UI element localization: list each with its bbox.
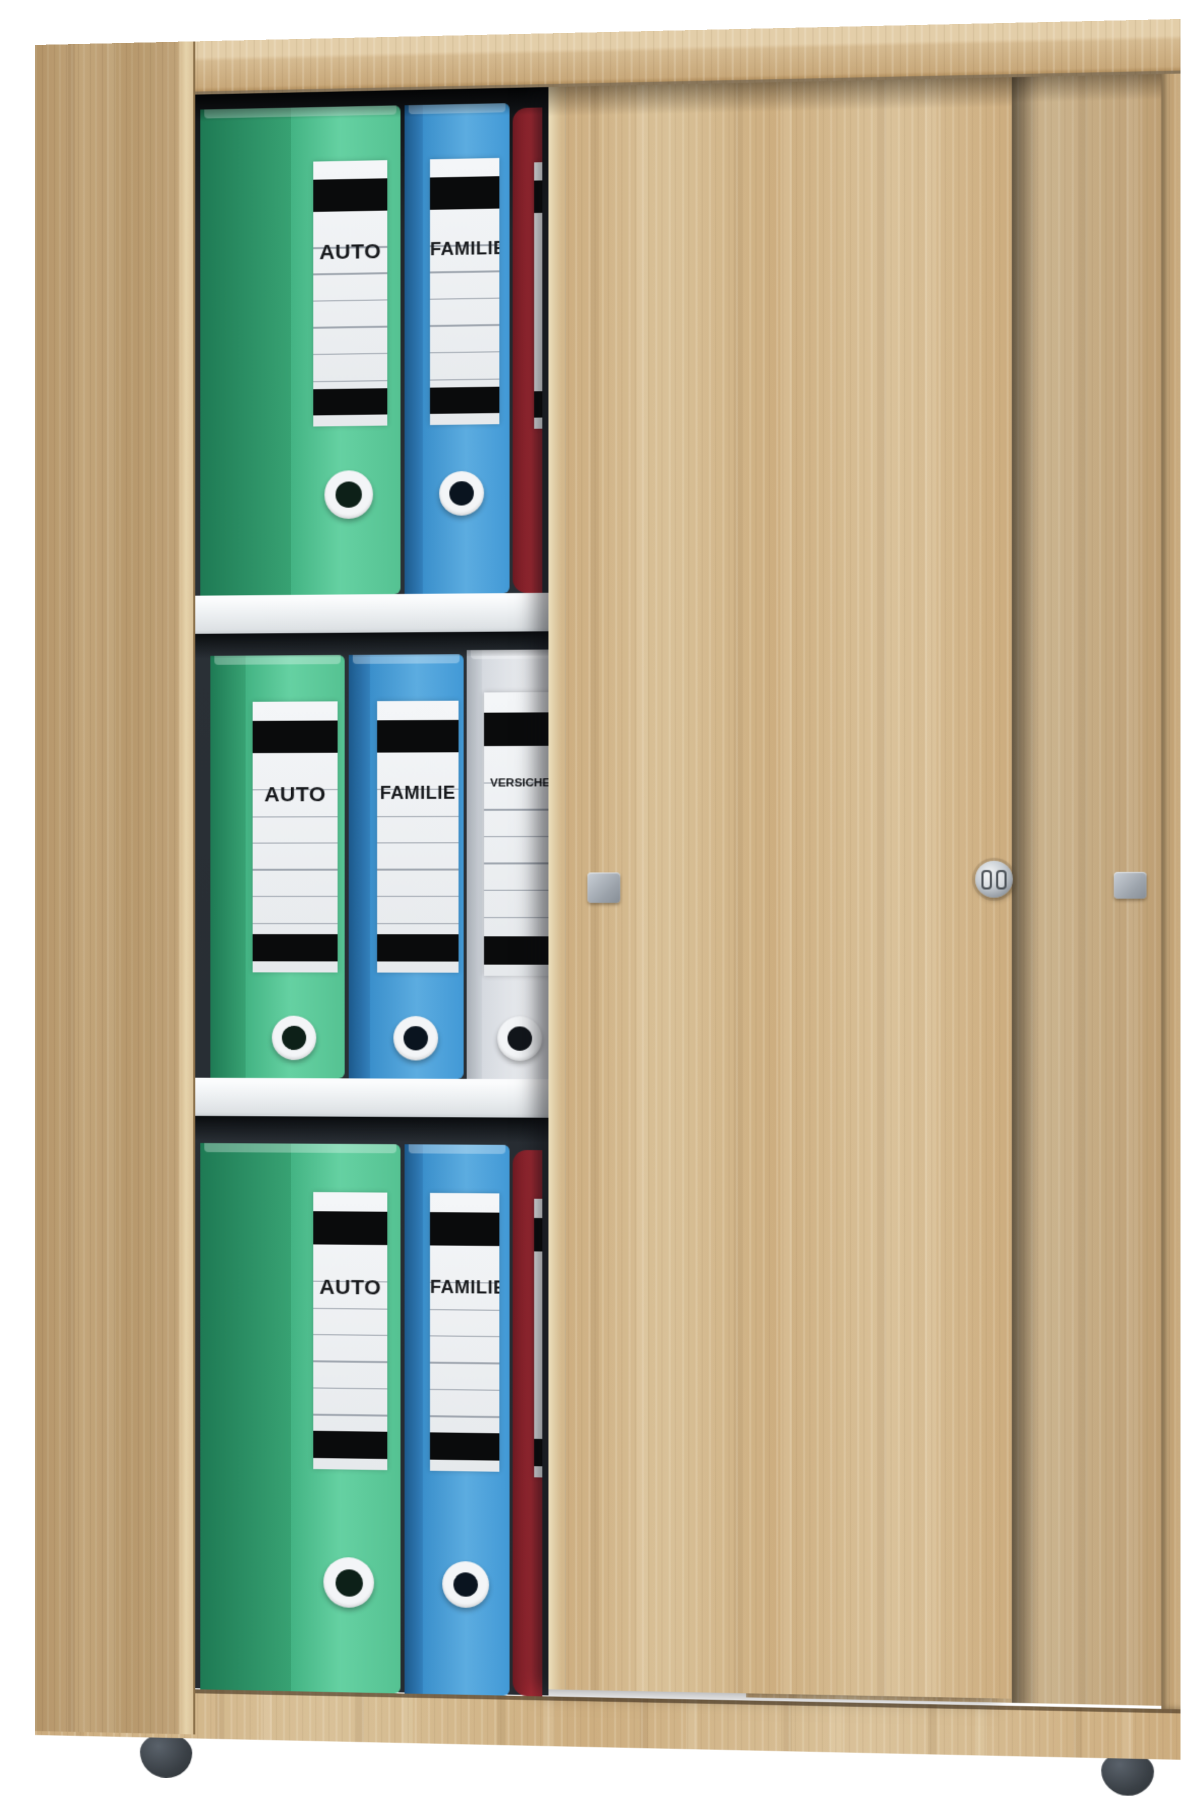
binder-label-text: AUTO bbox=[253, 783, 338, 807]
binder-blue-familie-bottom: FAMILIE bbox=[405, 1144, 510, 1695]
binder-green-auto-bottom: AUTO bbox=[200, 1143, 400, 1693]
binder-spine-shade bbox=[200, 108, 291, 596]
cabinet: AUTO FAMILIE AUTO bbox=[35, 19, 1180, 1801]
label-black-bar bbox=[430, 1432, 499, 1461]
binder-label bbox=[534, 162, 542, 429]
binder-label-text: FAMILIE bbox=[430, 1276, 499, 1298]
binder-grip-hole bbox=[442, 1561, 489, 1608]
binder-grip-hole bbox=[323, 1557, 374, 1608]
label-black-bar bbox=[377, 720, 458, 753]
front-door-handle bbox=[587, 872, 620, 902]
binder-spine-shade bbox=[210, 656, 245, 1078]
binder-green-auto-middle: AUTO bbox=[210, 655, 344, 1078]
binder-label: FAMILIE bbox=[430, 158, 499, 425]
side-panel-front-edge bbox=[177, 41, 195, 1734]
shelf-shadow bbox=[185, 1116, 548, 1142]
binder-spine-shade bbox=[349, 655, 370, 1079]
binder-label-text: FAMILIE bbox=[430, 238, 499, 260]
door-lock bbox=[975, 861, 1013, 898]
binder-grip-hole bbox=[393, 1016, 438, 1061]
binder-grip-hole bbox=[272, 1016, 316, 1060]
binder-blue-familie-top: FAMILIE bbox=[405, 103, 510, 594]
binder-spine-shade bbox=[405, 1144, 423, 1694]
shelf-shadow bbox=[185, 631, 548, 658]
binder-label: FAMILIE bbox=[377, 701, 458, 973]
label-black-bar bbox=[313, 1430, 387, 1459]
binder-label bbox=[534, 1199, 542, 1478]
binder-red-top bbox=[513, 107, 543, 593]
label-black-bar bbox=[534, 181, 542, 213]
binder-grip-hole bbox=[497, 1016, 542, 1061]
label-black-bar bbox=[313, 1211, 387, 1245]
door-edge bbox=[548, 86, 565, 1690]
label-black-bar bbox=[430, 1212, 499, 1246]
binder-blue-familie-middle: FAMILIE bbox=[349, 654, 464, 1079]
binder-label: AUTO bbox=[253, 701, 338, 972]
cabinet-right-edge bbox=[1161, 65, 1180, 1709]
label-black-bar bbox=[534, 391, 542, 418]
binder-spine-shade bbox=[467, 650, 482, 1079]
binder-spine-shade bbox=[200, 1143, 291, 1691]
binder-grip-hole bbox=[324, 470, 373, 519]
label-black-bar bbox=[534, 1218, 542, 1252]
label-black-bar bbox=[377, 935, 458, 962]
sliding-door-front bbox=[548, 76, 1011, 1699]
shelf-upper bbox=[185, 593, 548, 634]
label-black-bar bbox=[534, 1438, 542, 1466]
door-overlap-shadow bbox=[1012, 71, 1039, 1703]
binder-label: AUTO bbox=[313, 160, 387, 426]
binder-label-text: AUTO bbox=[313, 240, 387, 265]
binder-label-text: FAMILIE bbox=[377, 782, 458, 803]
cabinet-left-side-panel bbox=[35, 41, 195, 1734]
binder-spine-shade bbox=[405, 105, 423, 594]
binder-green-auto-top: AUTO bbox=[200, 105, 400, 595]
rear-door-handle bbox=[1114, 872, 1147, 899]
binder-label-text: AUTO bbox=[313, 1275, 387, 1300]
binder-grip-hole bbox=[439, 471, 484, 516]
label-black-bar bbox=[430, 177, 499, 210]
label-black-bar bbox=[253, 720, 338, 753]
binder-label: FAMILIE bbox=[430, 1193, 499, 1472]
label-black-bar bbox=[430, 387, 499, 415]
binder-label: AUTO bbox=[313, 1192, 387, 1470]
label-black-bar bbox=[253, 934, 338, 961]
binder-red-bottom bbox=[513, 1150, 543, 1696]
label-black-bar bbox=[313, 388, 387, 415]
cabinet-foot-left bbox=[140, 1733, 192, 1778]
shelf-lower bbox=[185, 1078, 548, 1118]
side-panel-shading bbox=[35, 42, 179, 1734]
label-black-bar bbox=[313, 179, 387, 212]
